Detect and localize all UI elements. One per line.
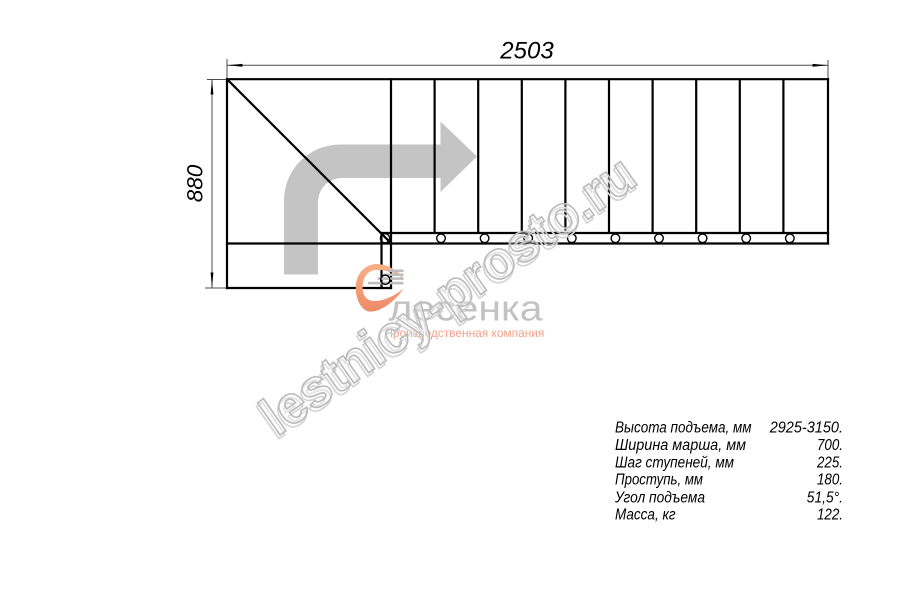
svg-text:180.: 180. (817, 472, 843, 489)
svg-text:Шаг ступеней, мм: Шаг ступеней, мм (615, 455, 734, 472)
svg-text:Проступь, мм: Проступь, мм (615, 472, 703, 489)
svg-text:122.: 122. (817, 507, 843, 524)
svg-text:2503: 2503 (499, 38, 554, 65)
svg-text:Масса, кг: Масса, кг (615, 507, 676, 524)
svg-text:51,5°.: 51,5°. (807, 489, 843, 506)
svg-text:880: 880 (183, 164, 208, 202)
svg-text:700.: 700. (817, 437, 843, 454)
svg-text:Высота подъема, мм: Высота подъема, мм (615, 420, 752, 437)
svg-text:Ширина марша, мм: Ширина марша, мм (615, 437, 746, 454)
svg-text:Угол подъема: Угол подъема (614, 489, 705, 506)
svg-text:2925-3150.: 2925-3150. (769, 420, 843, 437)
svg-text:225.: 225. (816, 455, 843, 472)
